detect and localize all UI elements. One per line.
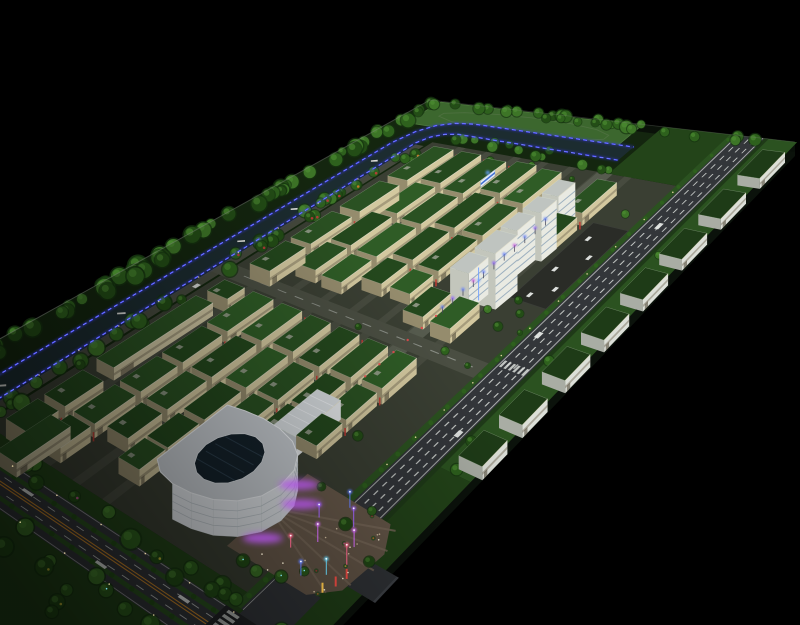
streetlight (12, 465, 14, 467)
pedestrian (348, 553, 350, 555)
pedestrian (379, 533, 381, 535)
pedestrian (261, 553, 263, 555)
streetlight (19, 521, 21, 523)
street-led-glow (472, 279, 475, 282)
streetlight (672, 192, 674, 194)
streetlight (153, 614, 155, 616)
purple-accent-glow (279, 480, 319, 490)
tree-light (304, 570, 306, 572)
pedestrian (378, 539, 380, 541)
pedestrian (349, 546, 351, 548)
streetlight (189, 582, 191, 584)
pedestrian (267, 569, 269, 571)
streetlight (100, 524, 102, 526)
pylon-core (318, 504, 320, 506)
pedestrian (342, 578, 344, 580)
tree-light (106, 588, 108, 590)
purple-accent-glow (281, 499, 321, 509)
streetlight (56, 495, 58, 497)
pylon-core (353, 507, 355, 509)
pedestrian (324, 589, 326, 591)
pedestrian (325, 537, 327, 539)
streetlight (278, 227, 279, 228)
streetlight (108, 583, 110, 585)
pedestrian (377, 534, 379, 536)
streetlight (238, 252, 239, 253)
streetlight (501, 355, 503, 357)
street-led-glow (482, 270, 485, 273)
streetlight (78, 350, 79, 351)
streetlight (357, 178, 358, 179)
streetlight (615, 246, 617, 248)
street-led-glow (513, 244, 516, 247)
street-led-glow (461, 288, 464, 291)
pylon-core (353, 529, 355, 531)
streetlight (233, 611, 235, 613)
banner-pole (335, 577, 337, 587)
street-led-glow (544, 217, 547, 220)
red-lantern (407, 339, 409, 341)
banner-pole (322, 583, 324, 593)
pylon-core (346, 544, 348, 546)
pedestrian (282, 562, 284, 564)
red-lantern (378, 363, 380, 365)
red-lantern (435, 315, 437, 317)
streetlight (558, 300, 560, 302)
red-lantern (421, 327, 423, 329)
pylon-core (325, 558, 327, 560)
streetlight (118, 325, 119, 326)
tree-light (280, 575, 282, 577)
street-led-glow (523, 235, 526, 238)
tower-led-glow (477, 279, 481, 283)
street-led-glow (492, 261, 495, 264)
streetlight (198, 276, 199, 277)
pylon-core (300, 561, 302, 563)
pedestrian (313, 591, 315, 593)
pedestrian (304, 560, 306, 562)
streetlight (158, 301, 159, 302)
street-led-glow (451, 297, 454, 300)
scene-canvas (0, 0, 800, 625)
architectural-model-photo (0, 0, 800, 625)
streetlight (318, 203, 319, 204)
pedestrian (336, 528, 338, 530)
streetlight (415, 436, 417, 438)
pylon-core (290, 535, 292, 537)
street-led-glow (534, 226, 537, 229)
pedestrian (356, 543, 358, 545)
streetlight (145, 553, 147, 555)
street-led-glow (441, 305, 444, 308)
streetlight (38, 374, 39, 375)
streetlight (386, 464, 388, 466)
streetlight (529, 328, 531, 330)
banner-pole (346, 569, 348, 579)
red-lantern (392, 351, 394, 353)
pylon-core (349, 491, 351, 493)
streetlight (443, 409, 445, 411)
streetlight (397, 154, 398, 155)
street-led-glow (503, 253, 506, 256)
sign-glow (486, 171, 490, 175)
pylon-core (317, 523, 319, 525)
streetlight (64, 552, 66, 554)
tree-light (242, 559, 244, 561)
streetlight (643, 219, 645, 221)
red-lantern (364, 375, 366, 377)
pedestrian (347, 572, 349, 574)
purple-accent-glow (243, 533, 283, 543)
streetlight (472, 382, 474, 384)
streetlight (586, 273, 588, 275)
